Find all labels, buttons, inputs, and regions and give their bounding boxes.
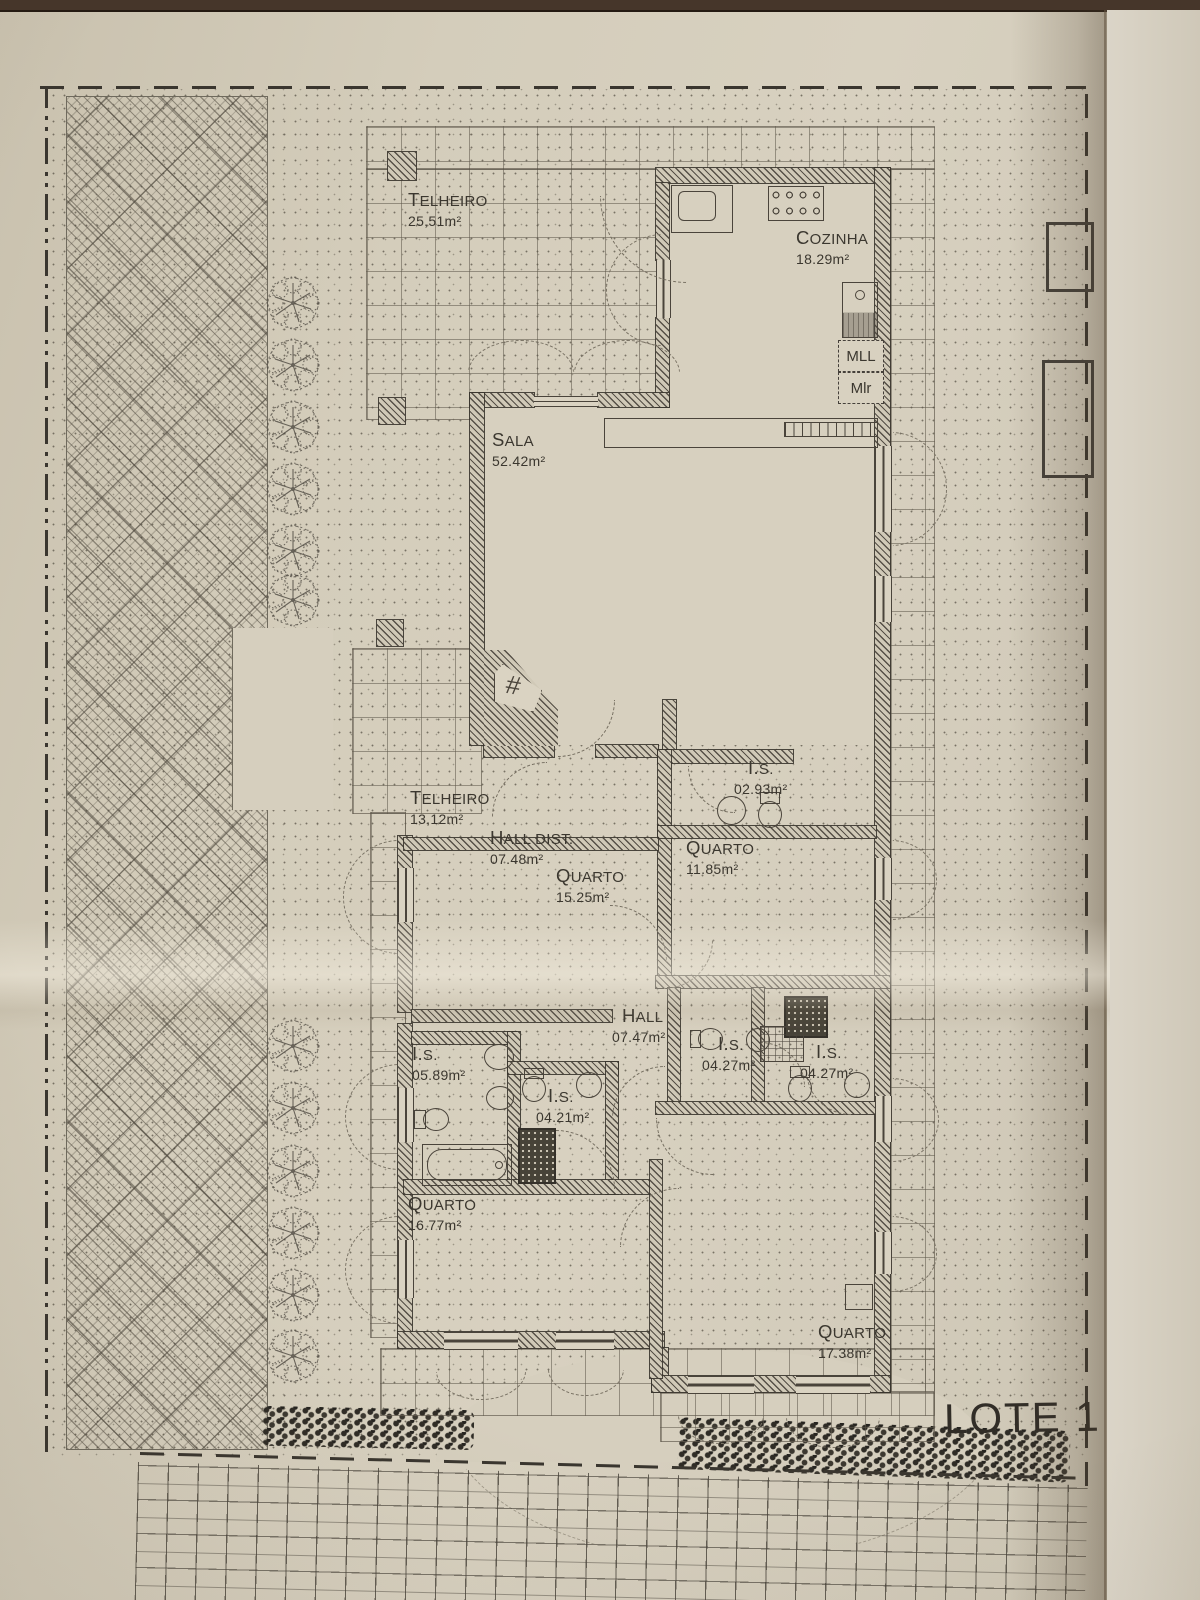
column bbox=[379, 398, 405, 424]
room-label-sala: SALA52.42m² bbox=[492, 428, 545, 471]
tree-icon bbox=[261, 1201, 325, 1265]
bathtub-icon bbox=[422, 1144, 512, 1186]
tree-icon bbox=[261, 1324, 325, 1388]
room-label-quarto-17: QUARTO17.38m² bbox=[818, 1320, 886, 1363]
tree-icon bbox=[261, 333, 325, 397]
tree-icon bbox=[261, 271, 325, 335]
counter-detail bbox=[784, 422, 878, 437]
dishwasher-box: MLL bbox=[838, 340, 884, 372]
column bbox=[377, 620, 403, 646]
room-label-hall-dist: HALL DIST.07.48m² bbox=[490, 826, 573, 869]
wardrobe-box bbox=[845, 1284, 873, 1310]
tree-icon bbox=[261, 395, 325, 459]
sink-icon bbox=[484, 1044, 514, 1070]
window bbox=[398, 868, 414, 922]
wall bbox=[398, 1332, 664, 1348]
stove-icon bbox=[768, 186, 824, 221]
patio-notch bbox=[232, 628, 333, 810]
window bbox=[398, 1240, 414, 1298]
room-label-is-293: I.S.02.93m² bbox=[734, 756, 787, 799]
wall bbox=[598, 393, 669, 407]
sink-icon bbox=[717, 796, 746, 825]
room-label-quarto-15: QUARTO15.25m² bbox=[556, 864, 624, 907]
shower-icon bbox=[760, 1026, 804, 1062]
terrace-tiles-top-strip bbox=[366, 126, 935, 170]
partition-wall bbox=[668, 988, 680, 1104]
paper-top-edge bbox=[0, 0, 1200, 12]
window bbox=[875, 1096, 892, 1142]
partition-wall bbox=[656, 1102, 890, 1114]
planter-box bbox=[1042, 360, 1094, 478]
tree-icon bbox=[261, 1139, 325, 1203]
kitchen-sink-icon bbox=[678, 191, 716, 221]
window bbox=[398, 1088, 414, 1142]
room-label-is-427a: I.S.04.27m² bbox=[702, 1032, 755, 1075]
wall bbox=[656, 168, 890, 183]
column bbox=[388, 152, 416, 180]
washer-box: Mlr bbox=[838, 372, 884, 404]
boundary-line-top bbox=[40, 86, 1086, 89]
room-label-hall: HALL07.47m² bbox=[612, 1004, 665, 1047]
tree-icon bbox=[261, 1263, 325, 1327]
tree-icon bbox=[261, 568, 325, 632]
window bbox=[875, 576, 892, 622]
planter-box bbox=[1046, 222, 1094, 292]
window bbox=[796, 1376, 870, 1394]
window bbox=[875, 858, 892, 900]
window bbox=[875, 1232, 892, 1274]
room-label-quarto-11: QUARTO11.85m² bbox=[686, 836, 754, 879]
wall bbox=[596, 745, 658, 757]
room-label-telheiro-top: TELHEIRO25,51m² bbox=[408, 188, 488, 231]
boundary-line-right bbox=[1085, 86, 1088, 1486]
paper-right-margin bbox=[1107, 10, 1200, 1600]
tap-icon bbox=[855, 290, 865, 300]
window bbox=[688, 1376, 754, 1394]
window bbox=[556, 1332, 614, 1350]
room-label-quarto-16: QUARTO16.77m² bbox=[408, 1192, 476, 1235]
lote-1-label: LOTE 1 bbox=[944, 1393, 1102, 1444]
bidet-icon bbox=[486, 1086, 514, 1110]
toilet-icon bbox=[414, 1106, 448, 1132]
room-label-is-421: I.S.04.21m² bbox=[536, 1084, 589, 1127]
wall bbox=[484, 745, 554, 757]
wall bbox=[398, 836, 412, 1012]
room-label-is-427b: I.S.04.27m² bbox=[800, 1040, 853, 1083]
floor-plan-photo: MLL Mlr # TELHEIRO25,51m² COZINHA18.29m²… bbox=[0, 0, 1200, 1600]
tree-icon bbox=[261, 457, 325, 521]
window bbox=[444, 1332, 518, 1350]
wall bbox=[663, 700, 676, 752]
window bbox=[534, 396, 598, 407]
fireplace-icon: # bbox=[484, 650, 558, 746]
walkway-tiles-right bbox=[890, 168, 935, 1392]
room-label-cozinha: COZINHA18.29m² bbox=[796, 226, 868, 269]
wall bbox=[470, 393, 484, 745]
boundary-line-left bbox=[45, 86, 48, 1452]
room-label-is-589: I.S.05.89m² bbox=[412, 1042, 465, 1085]
partition-wall bbox=[412, 1010, 612, 1022]
street-paving bbox=[135, 1462, 1088, 1600]
tree-icon bbox=[261, 1014, 325, 1078]
window bbox=[875, 446, 892, 532]
shower-icon bbox=[518, 1128, 556, 1184]
tree-icon bbox=[261, 1076, 325, 1140]
room-label-telheiro-side: TELHEIRO13,12m² bbox=[410, 786, 490, 829]
